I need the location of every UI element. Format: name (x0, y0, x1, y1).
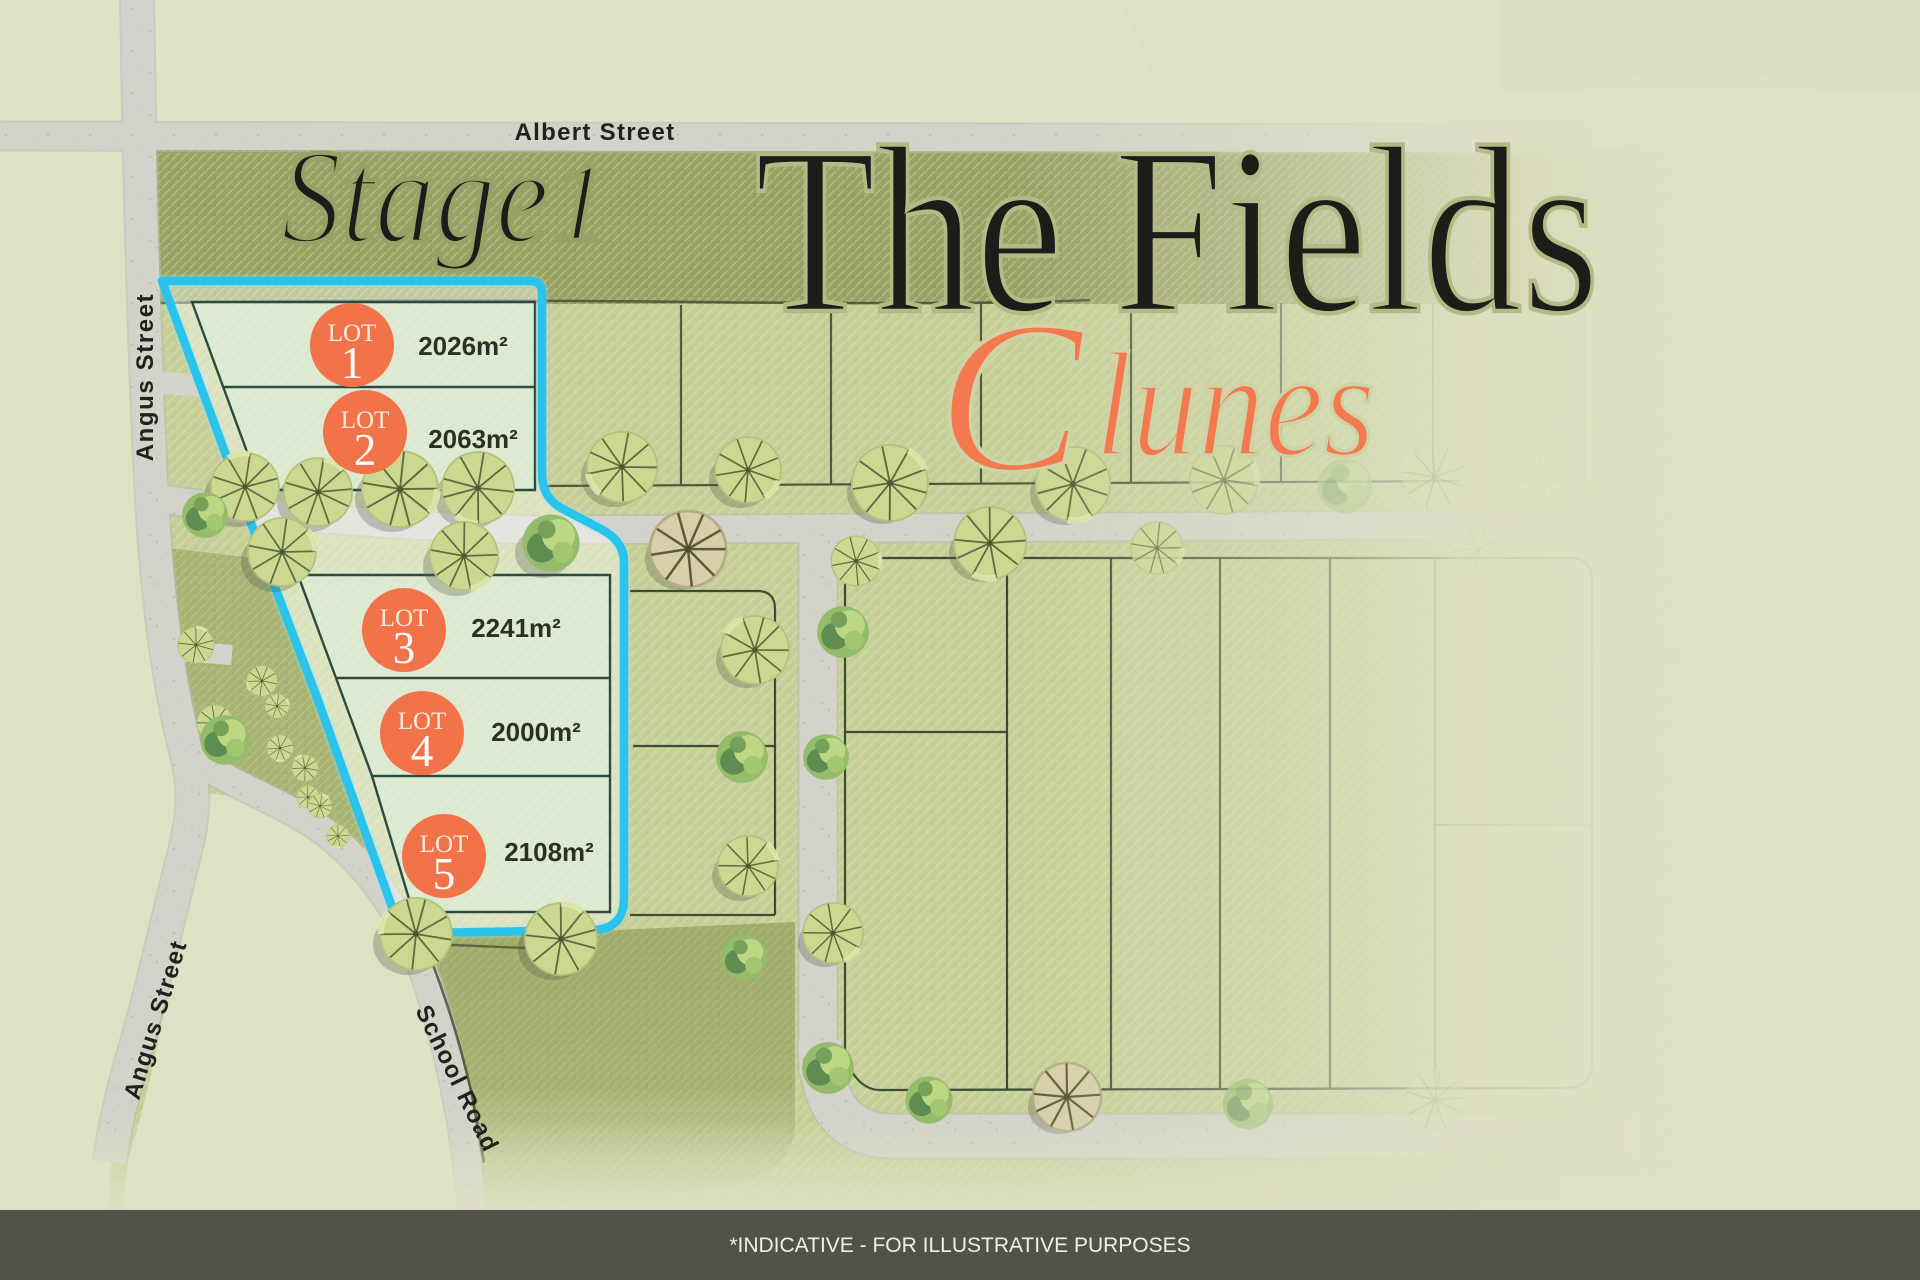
svg-text:2108m²: 2108m² (504, 837, 594, 867)
svg-text:2000m²: 2000m² (491, 717, 581, 747)
svg-text:2: 2 (354, 425, 377, 475)
svg-text:5: 5 (433, 849, 456, 899)
svg-text:*INDICATIVE - FOR ILLUSTRATIVE: *INDICATIVE - FOR ILLUSTRATIVE PURPOSES (729, 1234, 1190, 1257)
svg-text:Stage: Stage (281, 123, 549, 272)
svg-text:Angus Street: Angus Street (132, 293, 159, 462)
svg-text:lunes: lunes (1095, 322, 1375, 488)
svg-text:1: 1 (341, 338, 364, 388)
svg-text:2026m²: 2026m² (418, 331, 508, 361)
svg-text:4: 4 (411, 726, 434, 776)
svg-text:1: 1 (552, 141, 608, 265)
svg-text:2241m²: 2241m² (471, 613, 561, 643)
svg-text:C: C (937, 277, 1085, 518)
svg-text:3: 3 (393, 623, 416, 673)
svg-text:2063m²: 2063m² (428, 424, 518, 454)
